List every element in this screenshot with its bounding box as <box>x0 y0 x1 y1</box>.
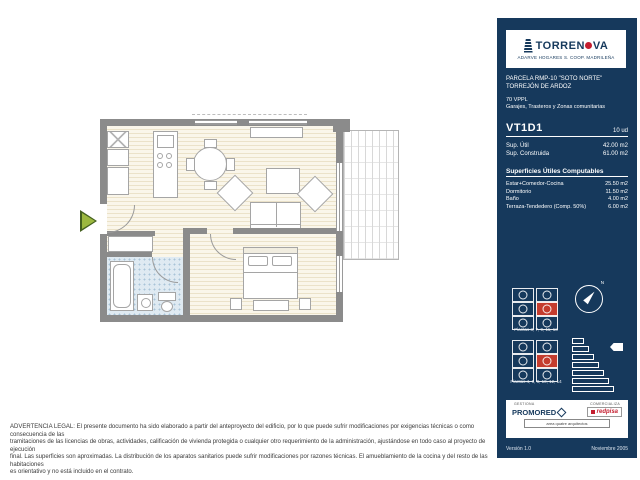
dining-chair <box>186 158 195 171</box>
entrance-arrow-icon-fill <box>82 213 95 229</box>
promored-diamond-icon <box>557 407 567 417</box>
unit-header: VT1D1 10 ud <box>506 122 628 137</box>
architect-credit: area quatre arquitectos <box>524 419 610 428</box>
wall-bathroom-top <box>107 252 152 257</box>
bed <box>243 247 298 299</box>
dining-chair <box>204 139 217 148</box>
plan-sheet: { "sidebar": { "bg_color": "#16395C", "a… <box>0 0 640 480</box>
toilet <box>161 301 173 312</box>
disclaimer-line: ADVERTENCIA LEGAL: El presente documento… <box>10 424 488 439</box>
wall-terrace-stub <box>333 119 350 132</box>
wall-bedroom-left <box>183 228 190 315</box>
area-row: Sup. Útil42.00 m2 <box>506 142 628 150</box>
washing-machine <box>107 131 129 148</box>
terrace-floor <box>343 130 399 260</box>
project-city: TORREJÓN DE ARDOZ <box>506 83 628 91</box>
energy-rating-chart-icon <box>572 338 614 394</box>
toilet-tank <box>158 292 176 301</box>
keyplan-odd-label: Plantas 3, 7, 9, 11, 13 <box>501 327 571 332</box>
disclaimer-line: final. Las superficies son aproximadas. … <box>10 454 488 469</box>
kitchen-cabinet <box>107 149 129 166</box>
fridge <box>107 167 129 195</box>
nightstand <box>299 298 311 310</box>
window-bedroom <box>336 256 343 292</box>
document-version: Versión 1.0 <box>506 446 531 452</box>
computable-row: Dormitorio11.50 m2 <box>506 189 628 197</box>
project-extras: Garajes, Trasteros y Zonas comunitarias <box>506 104 628 111</box>
closet <box>108 236 153 252</box>
computable-row: Baño4.00 m2 <box>506 196 628 204</box>
dining-table <box>193 147 227 181</box>
promoter-caption: GESTIONA <box>514 402 535 406</box>
dining-chair <box>204 181 217 190</box>
north-compass-icon: N <box>575 285 603 313</box>
area-summary: Sup. Útil42.00 m2 Sup. Construida61.00 m… <box>506 142 628 158</box>
bathtub <box>110 261 134 311</box>
promored-logo: PROMORED <box>512 408 565 417</box>
terrace-door <box>336 163 343 231</box>
unit-code: VT1D1 <box>506 122 543 134</box>
computable-title: Superficies Útiles Computables <box>506 168 628 177</box>
agency-caption: COMERCIALIZA <box>590 402 620 406</box>
keyplan-even-floors <box>512 340 558 382</box>
torrenova-logo: TORRENVA ADARVE HOGARES S. COOP. MADRILE… <box>506 30 626 68</box>
coffee-table <box>266 168 300 194</box>
bed-bench <box>253 300 289 311</box>
brand-red-dot-icon <box>585 42 592 49</box>
brand-subtitle: ADARVE HOGARES S. COOP. MADRILEÑA <box>518 55 615 60</box>
computable-row: Terraza-Tendedero (Comp. 50%)6.00 m2 <box>506 204 628 212</box>
redpisa-logo: redpisa <box>587 407 622 417</box>
project-parcel: PARCELA RMP-10 "SOTO NORTE" <box>506 75 628 83</box>
area-row: Sup. Construida61.00 m2 <box>506 150 628 158</box>
kitchen-sink <box>157 135 174 148</box>
project-info: PARCELA RMP-10 "SOTO NORTE" TORREJÓN DE … <box>506 75 628 111</box>
document-date: Noviembre 2005 <box>591 446 628 452</box>
wall-divider <box>233 228 336 234</box>
computable-areas: Estar+Comedor-Cocina25.50 m2 Dormitorio1… <box>506 181 628 211</box>
computable-row: Estar+Comedor-Cocina25.50 m2 <box>506 181 628 189</box>
legal-disclaimer: ADVERTENCIA LEGAL: El presente documento… <box>10 424 488 477</box>
window-living-top <box>249 120 307 125</box>
info-sidebar: TORRENVA ADARVE HOGARES S. COOP. MADRILE… <box>497 18 637 458</box>
project-units: 70 VPPL <box>506 97 628 104</box>
disclaimer-line: es orientativo y no está incluido en el … <box>10 469 488 477</box>
torrenova-building-icon <box>524 39 533 53</box>
window-dining-top <box>195 120 237 125</box>
version-row: Versión 1.0 Noviembre 2005 <box>506 446 628 452</box>
entry-opening <box>100 204 107 234</box>
footer-logos: GESTIONA COMERCIALIZA PROMORED redpisa a… <box>506 400 628 438</box>
brand-name: TORRENVA <box>536 40 609 52</box>
redpisa-square-icon <box>591 410 595 414</box>
highlighted-unit <box>536 354 558 368</box>
nightstand <box>230 298 242 310</box>
bathroom-sink <box>137 294 153 311</box>
dining-chair <box>226 158 235 171</box>
highlighted-unit <box>536 302 558 316</box>
wall-bottom <box>100 315 343 322</box>
overhang-dashed-line <box>192 114 307 116</box>
keyplan-odd-floors <box>512 288 558 330</box>
sideboard <box>250 127 303 138</box>
disclaimer-line: tramitaciones de las licencias de obras,… <box>10 439 488 454</box>
keyplan-even-label: Plantas 4, 6, 8, 10, 12, 14 <box>501 379 571 384</box>
unit-count: 10 ud <box>613 128 628 134</box>
